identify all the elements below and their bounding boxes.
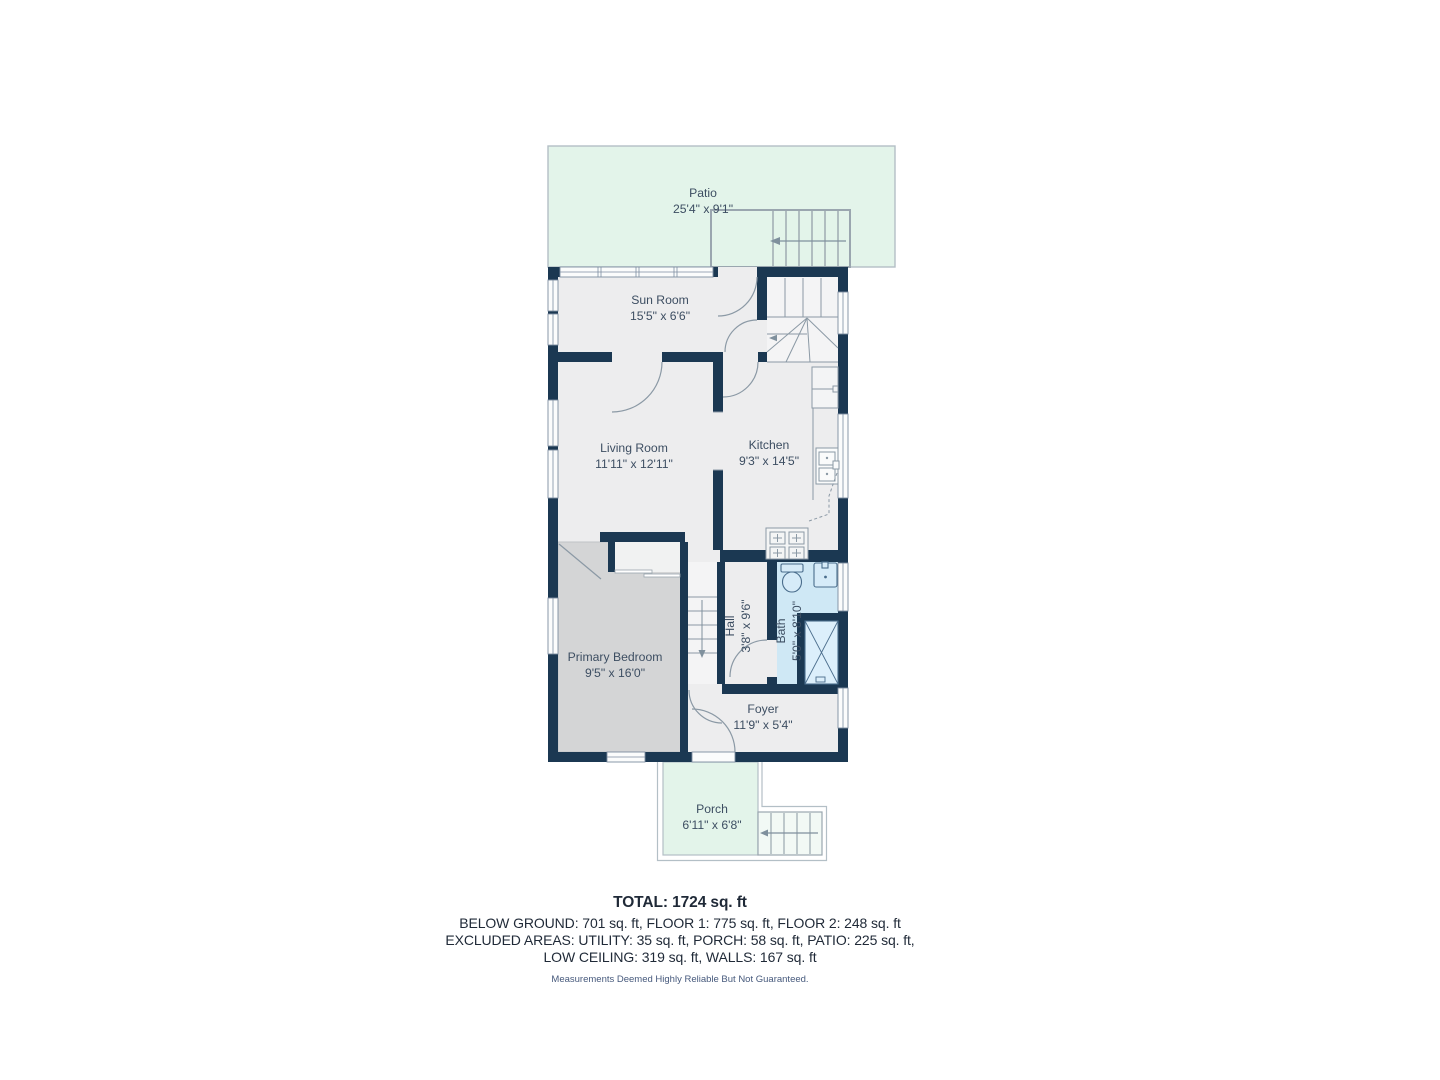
porch-dims: 6'11" x 6'8" [682, 818, 741, 832]
floor-areas-text: BELOW GROUND: 701 sq. ft, FLOOR 1: 775 s… [0, 915, 1360, 931]
bath-dims: 5'0" x 8'10" [790, 601, 804, 661]
front-door-threshold [692, 752, 735, 762]
living-kitchen-opening [713, 412, 723, 470]
bath-label: Bath [774, 618, 788, 643]
bedroom-label: Primary Bedroom [568, 650, 663, 664]
shower-drain [816, 677, 825, 682]
toilet-bowl [783, 572, 802, 592]
toilet-tank [781, 564, 803, 572]
disclaimer-text: Measurements Deemed Highly Reliable But … [0, 974, 1360, 985]
kitchen-dims: 9'3" x 14'5" [739, 454, 799, 468]
sunroom-label: Sun Room [631, 293, 689, 307]
kitchen-label: Kitchen [749, 438, 790, 452]
bedroom-floor [558, 542, 683, 752]
livingroom-label: Living Room [600, 441, 668, 455]
patio-label: Patio [689, 186, 717, 200]
excluded-areas-text: EXCLUDED AREAS: UTILITY: 35 sq. ft, PORC… [0, 932, 1360, 948]
hall-dims: 3'8" x 9'6" [739, 599, 753, 652]
closet-floor [615, 542, 680, 572]
foyer-label: Foyer [747, 702, 778, 716]
foyer-dims: 11'9" x 5'4" [733, 718, 792, 732]
livingroom-dims: 11'11" x 12'11" [595, 457, 673, 471]
floorplan-page: Patio 25'4" x 9'1" Sun Room 15'5" x 6'6"… [0, 0, 1440, 1080]
total-area-text: TOTAL: 1724 sq. ft [0, 894, 1360, 912]
bedroom-dims: 9'5" x 16'0" [585, 666, 645, 680]
hall-label: Hall [723, 616, 737, 637]
porch-label: Porch [696, 802, 728, 816]
excluded-areas-text-2: LOW CEILING: 319 sq. ft, WALLS: 167 sq. … [0, 949, 1360, 965]
patio-dims: 25'4" x 9'1" [673, 202, 733, 216]
sunroom-dims: 15'5" x 6'6" [630, 309, 690, 323]
porch-area [658, 762, 827, 861]
bath-faucet [822, 562, 828, 568]
